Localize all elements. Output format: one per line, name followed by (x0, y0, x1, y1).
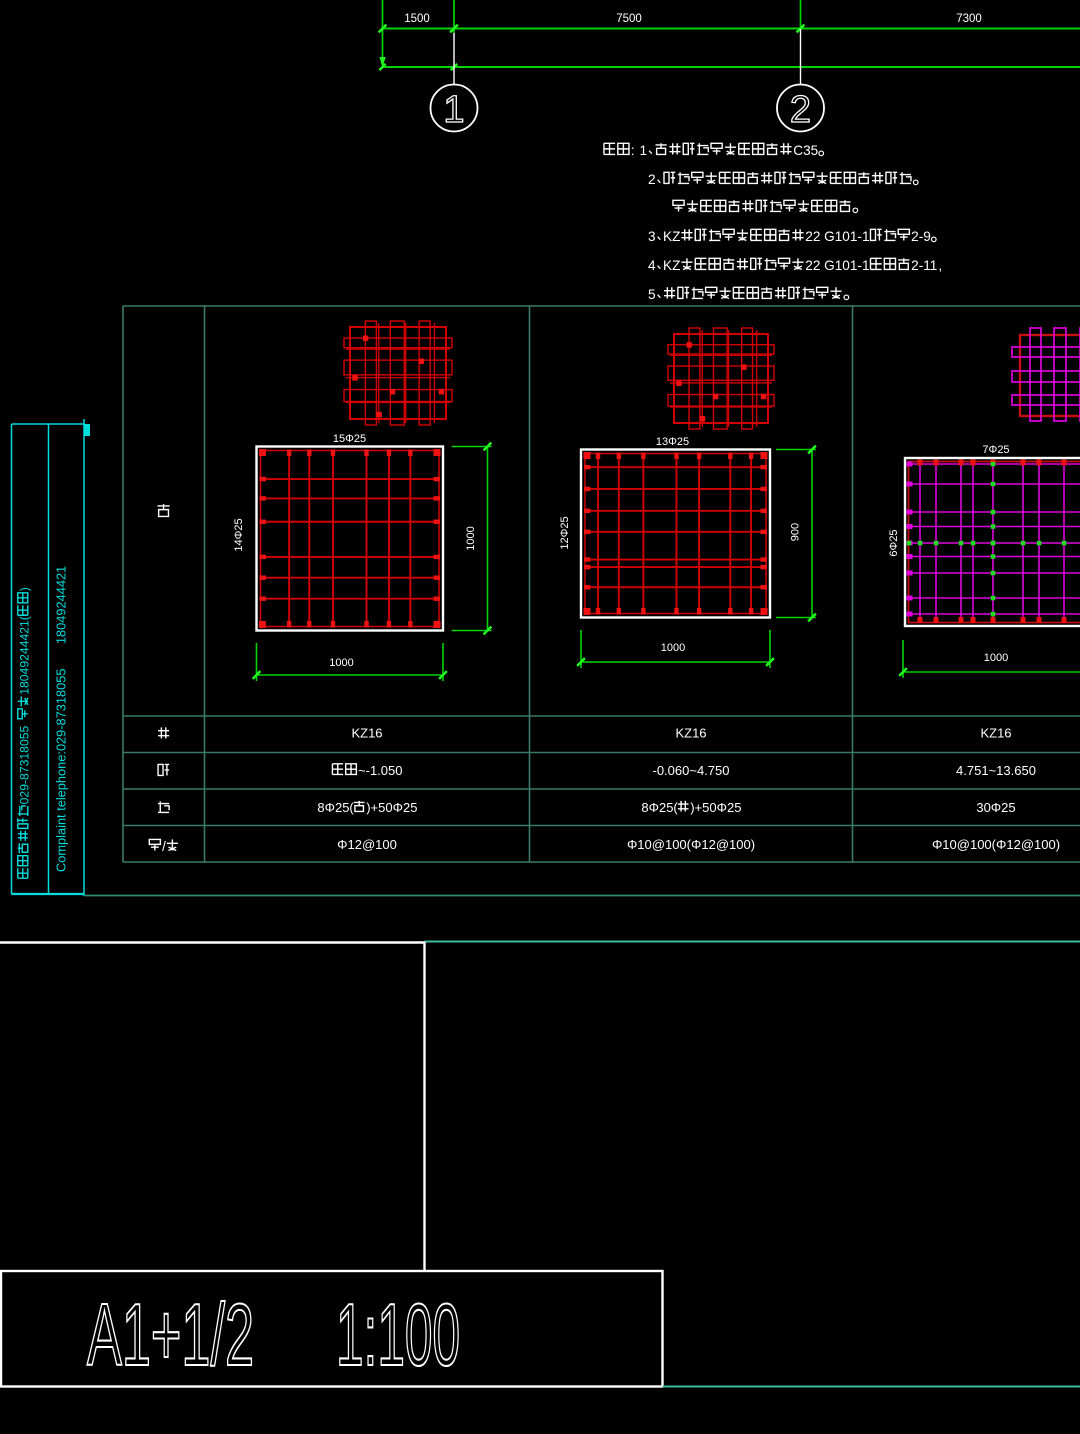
svg-text:~-1.050: ~-1.050 (358, 763, 402, 778)
svg-text:1000: 1000 (329, 657, 353, 669)
svg-text:Φ10@100(Φ12@100): Φ10@100(Φ12@100) (627, 837, 755, 852)
svg-text:2-11: 2-11 (911, 258, 937, 273)
svg-text::: : (631, 143, 635, 158)
svg-text:18049244421: 18049244421 (53, 566, 68, 644)
svg-text:KZ: KZ (663, 258, 680, 273)
svg-text:12Φ25: 12Φ25 (559, 516, 571, 549)
svg-text:900: 900 (790, 523, 802, 541)
svg-text:7300: 7300 (956, 13, 982, 25)
svg-text:6Φ25: 6Φ25 (888, 529, 900, 556)
svg-text:029-87318055: 029-87318055 (17, 725, 31, 804)
svg-text:15Φ25: 15Φ25 (333, 433, 366, 445)
svg-text:1000: 1000 (984, 652, 1008, 664)
svg-text:KZ16: KZ16 (351, 726, 382, 741)
svg-text:/: / (162, 839, 166, 854)
svg-text:18049244421(: 18049244421( (17, 616, 31, 695)
svg-text:C35: C35 (793, 143, 818, 158)
svg-text:14Φ25: 14Φ25 (233, 518, 245, 551)
svg-text:1000: 1000 (661, 642, 685, 654)
svg-text:): ) (17, 587, 31, 591)
svg-text:-0.060~4.750: -0.060~4.750 (653, 763, 730, 778)
svg-text:2-9: 2-9 (911, 229, 931, 244)
svg-text:KZ16: KZ16 (980, 726, 1011, 741)
svg-text:22 G101-1: 22 G101-1 (805, 258, 869, 273)
svg-text:KZ: KZ (663, 229, 680, 244)
svg-text:22 G101-1: 22 G101-1 (805, 229, 869, 244)
svg-text:,: , (938, 258, 942, 273)
svg-text:Φ12@100: Φ12@100 (337, 837, 397, 852)
svg-text:7500: 7500 (616, 13, 642, 25)
svg-text:Φ10@100(Φ12@100): Φ10@100(Φ12@100) (932, 837, 1060, 852)
svg-text:Complaint telephone:029-873180: Complaint telephone:029-87318055 (53, 669, 68, 873)
svg-text:)+50Φ25: )+50Φ25 (690, 800, 741, 815)
svg-text:KZ16: KZ16 (675, 726, 706, 741)
svg-text:4: 4 (648, 258, 656, 273)
svg-text:2: 2 (790, 89, 811, 131)
svg-text:30Φ25: 30Φ25 (976, 800, 1015, 815)
svg-text:1500: 1500 (404, 13, 430, 25)
svg-text:1: 1 (443, 89, 464, 131)
svg-text:8Φ25(: 8Φ25( (317, 800, 354, 815)
svg-text:2: 2 (648, 172, 656, 187)
svg-text:)+50Φ25: )+50Φ25 (366, 800, 417, 815)
svg-text:7Φ25: 7Φ25 (982, 444, 1009, 456)
svg-text:1000: 1000 (465, 526, 477, 550)
svg-text:1:100: 1:100 (336, 1285, 460, 1384)
svg-text:A1+1/2: A1+1/2 (87, 1285, 254, 1384)
svg-text:8Φ25(: 8Φ25( (641, 800, 678, 815)
svg-text:5: 5 (648, 287, 656, 302)
svg-text:1: 1 (640, 143, 648, 158)
svg-text:3: 3 (648, 229, 656, 244)
svg-text:13Φ25: 13Φ25 (656, 436, 689, 448)
svg-text:4.751~13.650: 4.751~13.650 (956, 763, 1036, 778)
